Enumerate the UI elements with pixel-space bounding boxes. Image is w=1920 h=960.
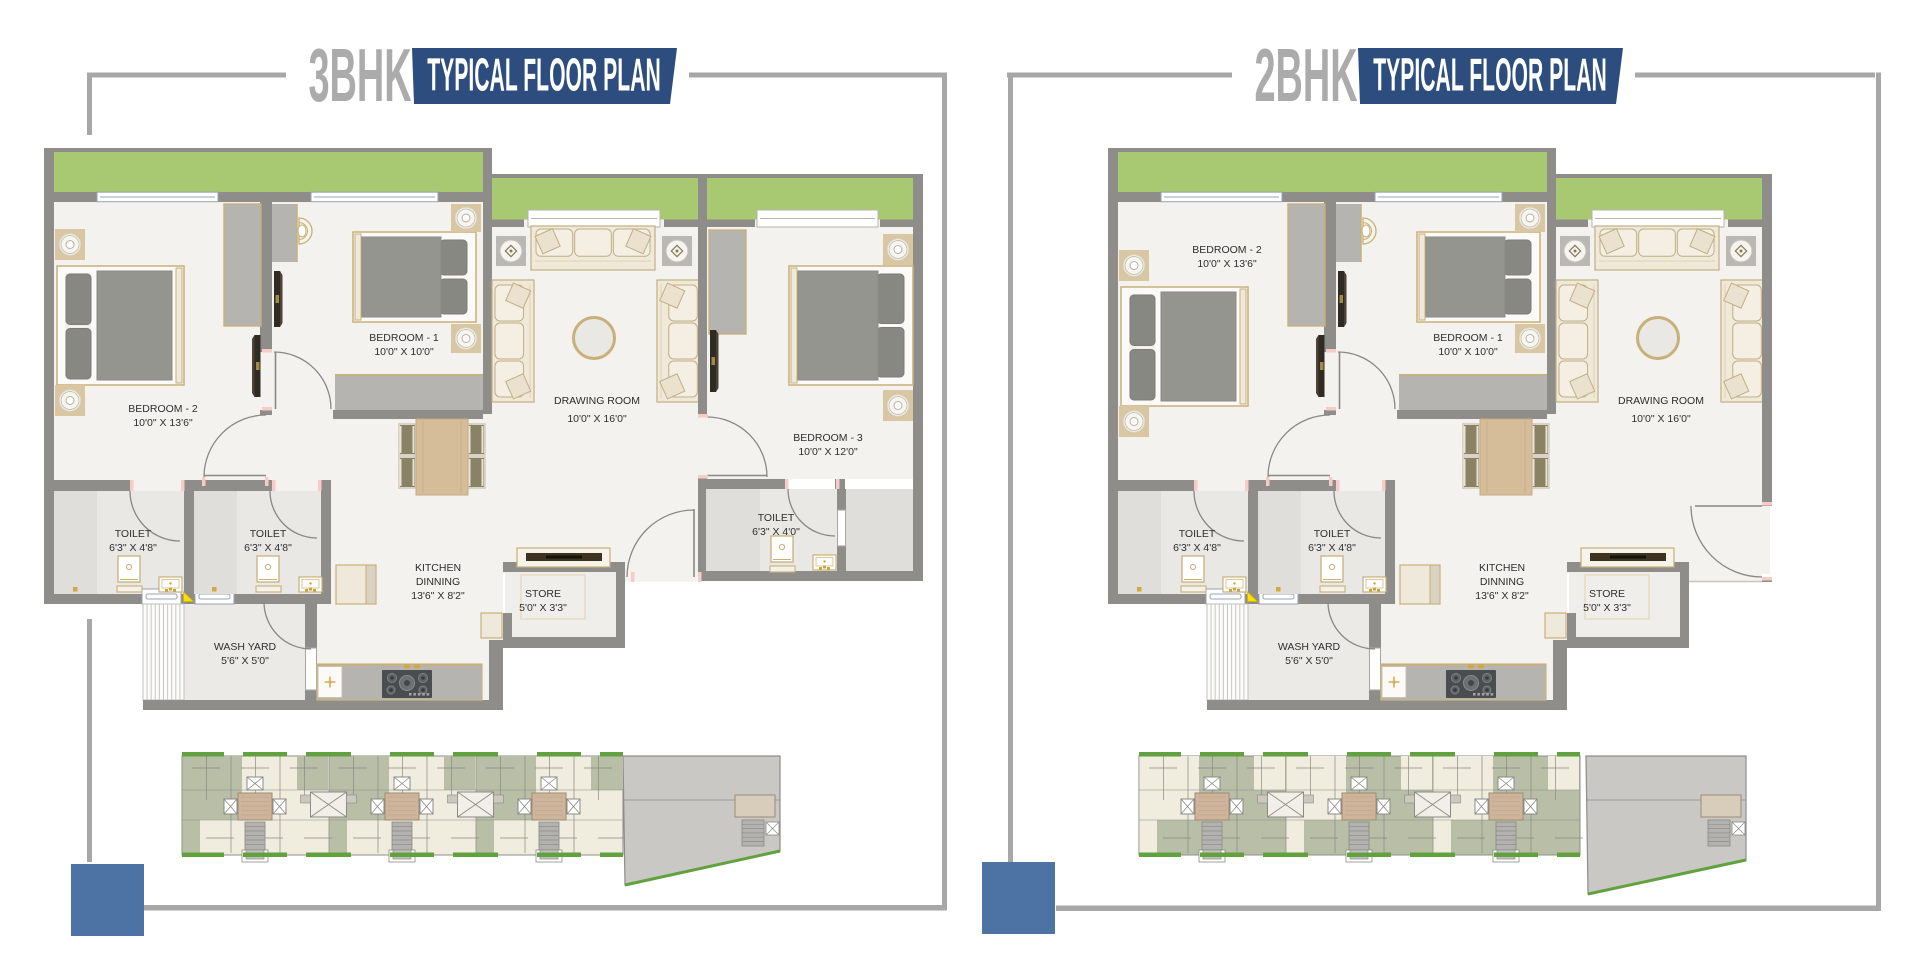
- svg-text:TOILET: TOILET: [758, 512, 795, 524]
- svg-text:TOILET: TOILET: [250, 528, 287, 540]
- svg-text:BEDROOM - 3: BEDROOM - 3: [793, 432, 863, 444]
- svg-text:TOILET: TOILET: [1179, 528, 1216, 540]
- svg-text:BEDROOM - 1: BEDROOM - 1: [369, 332, 439, 344]
- svg-text:6'3" X 4'8": 6'3" X 4'8": [109, 542, 157, 554]
- svg-text:WASH YARD: WASH YARD: [1278, 641, 1341, 653]
- svg-text:KITCHEN: KITCHEN: [415, 562, 461, 574]
- svg-text:10'0" X 16'0": 10'0" X 16'0": [1631, 413, 1691, 425]
- svg-text:TOILET: TOILET: [115, 528, 152, 540]
- svg-text:6'3" X 4'8": 6'3" X 4'8": [1308, 542, 1356, 554]
- svg-text:10'0" X 10'0": 10'0" X 10'0": [374, 346, 434, 358]
- svg-text:13'6" X 8'2": 13'6" X 8'2": [411, 590, 465, 602]
- svg-text:10'0" X 10'0": 10'0" X 10'0": [1438, 346, 1498, 358]
- svg-text:DRAWING ROOM: DRAWING ROOM: [554, 395, 640, 407]
- svg-text:DRAWING ROOM: DRAWING ROOM: [1618, 395, 1704, 407]
- svg-text:10'0" X 12'0": 10'0" X 12'0": [798, 446, 858, 458]
- svg-text:DINNING: DINNING: [416, 576, 460, 588]
- svg-text:6'3" X 4'8": 6'3" X 4'8": [1173, 542, 1221, 554]
- svg-text:3BHK: 3BHK: [308, 33, 411, 118]
- svg-text:10'0" X 13'6": 10'0" X 13'6": [133, 417, 193, 429]
- svg-text:10'0" X 16'0": 10'0" X 16'0": [567, 413, 627, 425]
- svg-text:5'6" X 5'0": 5'6" X 5'0": [221, 655, 269, 667]
- svg-text:5'0" X 3'3": 5'0" X 3'3": [1583, 602, 1631, 614]
- svg-text:KITCHEN: KITCHEN: [1479, 562, 1525, 574]
- svg-text:BEDROOM - 2: BEDROOM - 2: [128, 403, 198, 415]
- svg-text:BEDROOM - 2: BEDROOM - 2: [1192, 244, 1262, 256]
- svg-text:6'3" X 4'0": 6'3" X 4'0": [752, 526, 800, 538]
- svg-text:6'3" X 4'8": 6'3" X 4'8": [244, 542, 292, 554]
- svg-text:STORE: STORE: [1589, 588, 1625, 600]
- svg-text:13'6" X 8'2": 13'6" X 8'2": [1475, 590, 1529, 602]
- svg-text:STORE: STORE: [525, 588, 561, 600]
- svg-text:10'0" X 13'6": 10'0" X 13'6": [1197, 258, 1257, 270]
- svg-text:BEDROOM - 1: BEDROOM - 1: [1433, 332, 1503, 344]
- svg-text:TYPICAL FLOOR PLAN: TYPICAL FLOOR PLAN: [427, 49, 661, 100]
- svg-text:5'0" X 3'3": 5'0" X 3'3": [519, 602, 567, 614]
- svg-text:TOILET: TOILET: [1314, 528, 1351, 540]
- svg-text:TYPICAL FLOOR PLAN: TYPICAL FLOOR PLAN: [1373, 49, 1607, 100]
- svg-text:2BHK: 2BHK: [1254, 33, 1357, 118]
- svg-text:5'6" X 5'0": 5'6" X 5'0": [1285, 655, 1333, 667]
- svg-text:WASH YARD: WASH YARD: [214, 641, 277, 653]
- svg-text:DINNING: DINNING: [1480, 576, 1524, 588]
